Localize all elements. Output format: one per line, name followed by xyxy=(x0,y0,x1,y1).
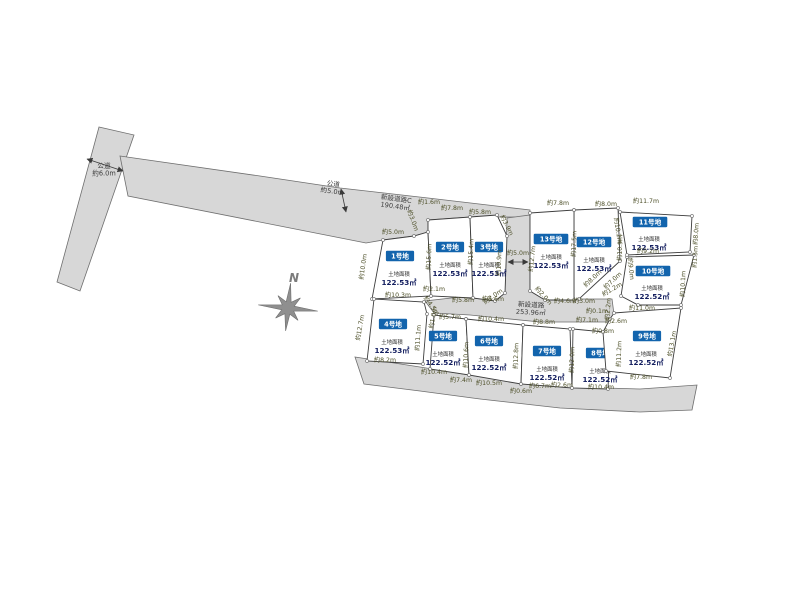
survey-marker-dot xyxy=(520,383,523,386)
survey-marker-dot xyxy=(382,239,385,242)
plot-2-label: 2号地 xyxy=(441,242,459,251)
survey-marker-dot xyxy=(426,313,429,316)
dimension-label: 約11.0m xyxy=(629,304,655,312)
survey-marker-dot xyxy=(573,209,576,212)
plot-4-area-title: 土地面積 xyxy=(381,338,403,346)
dimension-label: 約10.1m xyxy=(679,271,688,297)
survey-marker-dot xyxy=(413,235,416,238)
survey-marker-dot xyxy=(680,304,683,307)
plot-2-area-title: 土地面積 xyxy=(439,261,461,269)
plot-1-area-title: 土地面積 xyxy=(388,270,410,278)
new-road-label: 新設道路253.96㎡ xyxy=(516,299,547,317)
survey-marker-dot xyxy=(620,295,623,298)
plot-10-label: 10号地 xyxy=(642,266,665,275)
dimension-label: 約10.5m xyxy=(476,379,502,387)
dimension-label: 約10.4m xyxy=(421,368,447,376)
plot-7-area-value: 122.52㎡ xyxy=(530,373,566,382)
dimension-label: 約7.8m xyxy=(441,204,463,212)
compass-north-label: N xyxy=(289,271,299,285)
plot-1-label: 1号地 xyxy=(391,251,409,260)
dimension-label: 約8.8m xyxy=(533,318,555,326)
survey-marker-dot xyxy=(529,212,532,215)
plot-1-area-value: 122.53㎡ xyxy=(382,278,418,287)
dimension-label: 約10.3m xyxy=(385,291,411,299)
dimension-label: 約8.0m xyxy=(595,200,617,208)
plot-12-area-title: 土地面積 xyxy=(583,256,605,264)
survey-marker-dot xyxy=(422,363,425,366)
survey-marker-dot xyxy=(427,219,430,222)
survey-marker-dot xyxy=(529,290,532,293)
plot-6-label: 6号地 xyxy=(480,336,498,345)
dimension-label: 約5.7m xyxy=(439,313,461,321)
compass-star xyxy=(256,280,321,334)
plot-5-area-title: 土地面積 xyxy=(432,350,454,358)
plot-6-area-title: 土地面積 xyxy=(478,355,500,363)
dimension-label: 約10.6m xyxy=(462,342,471,368)
dimension-label: 約3.0m xyxy=(573,297,595,305)
dimension-label: 約7.1m xyxy=(576,316,598,324)
compass-rose-icon: N xyxy=(256,271,321,334)
dimension-label: 約15.4m xyxy=(467,239,476,265)
plot-7-label: 7号地 xyxy=(538,346,556,355)
plot-10-area-title: 土地面積 xyxy=(641,284,663,292)
dimension-label: 約12.0m xyxy=(568,347,577,373)
survey-marker-dot xyxy=(569,328,572,331)
survey-marker-dot xyxy=(373,298,376,301)
plot-9-area-title: 土地面積 xyxy=(635,350,657,358)
survey-marker-dot xyxy=(572,328,575,331)
plot-2-area-value: 122.53㎡ xyxy=(433,269,469,278)
survey-marker-dot xyxy=(605,370,608,373)
plot-6-area-value: 122.52㎡ xyxy=(472,363,508,372)
plot-8-area-value: 122.52㎡ xyxy=(583,375,619,384)
survey-marker-dot xyxy=(669,377,672,380)
dimension-label: 約10.4m xyxy=(478,315,504,323)
dimension-label: 約8.0m xyxy=(691,223,701,246)
dimension-label: 約12.7m xyxy=(354,314,366,341)
survey-marker-dot xyxy=(366,360,369,363)
dimension-label: 約7.8m xyxy=(547,199,569,207)
dimension-label: 約7.8m xyxy=(630,373,652,381)
plot-11-label: 11号地 xyxy=(639,217,662,226)
plot-9-area-value: 122.52㎡ xyxy=(629,358,665,367)
land-subdivision-plat-svg: 1号地土地面積122.53㎡2号地土地面積122.53㎡3号地土地面積122.5… xyxy=(0,0,800,600)
dimension-label: 約10.4m xyxy=(588,383,614,391)
plot-4-area-value: 122.53㎡ xyxy=(375,346,411,355)
survey-marker-dot xyxy=(689,251,692,254)
dimension-label: 約1.6m xyxy=(418,198,440,206)
survey-marker-dot xyxy=(465,318,468,321)
plot-7-area-title: 土地面積 xyxy=(536,365,558,373)
dimension-label: 約7.4m xyxy=(450,376,472,384)
dimension-label: 約8.2m xyxy=(374,356,396,364)
survey-marker-dot xyxy=(522,324,525,327)
dimension-label: 約9.2m xyxy=(637,247,659,255)
survey-marker-dot xyxy=(691,215,694,218)
plot-7: 7号地土地面積122.52㎡ xyxy=(520,324,574,390)
plot-13-area-title: 土地面積 xyxy=(540,253,562,261)
plot-10-area-value: 122.52㎡ xyxy=(635,292,671,301)
plot-13-label: 13号地 xyxy=(540,234,563,243)
dimension-label: 約5.0m xyxy=(507,249,529,257)
dimension-label: 約6.7m xyxy=(529,382,551,390)
dimension-label: 約2.6m xyxy=(551,381,573,389)
survey-marker-dot xyxy=(613,312,616,315)
plot-4-label: 4号地 xyxy=(384,319,402,328)
plot-9-label: 9号地 xyxy=(638,331,656,340)
land-plot-map-page: 1号地土地面積122.53㎡2号地土地面積122.53㎡3号地土地面積122.5… xyxy=(0,0,800,600)
dimension-label: 約12.8m xyxy=(512,343,521,369)
dimension-label: 約0.8m xyxy=(592,327,614,335)
dimension-label: 約17.5m xyxy=(570,231,579,257)
dimension-label: 約10.0m xyxy=(357,253,369,280)
survey-marker-dot xyxy=(427,231,430,234)
dimension-label: 約5.8m xyxy=(452,296,474,304)
dimension-label: 約11.2m xyxy=(615,341,624,367)
survey-marker-dot xyxy=(680,307,683,310)
plot-5-area-value: 122.52㎡ xyxy=(426,358,462,367)
plot-11-area-title: 土地面積 xyxy=(638,235,660,243)
plot-13-area-value: 122.53㎡ xyxy=(534,261,570,270)
dimension-label: 約5.0m xyxy=(382,228,404,236)
plot-12-label: 12号地 xyxy=(583,237,606,246)
plot-5-label: 5号地 xyxy=(434,331,452,340)
dimension-label: 約11.7m xyxy=(633,197,659,205)
dimension-label: 約2.1m xyxy=(423,285,445,293)
dimension-label: 約10.9m xyxy=(495,250,504,276)
dimension-label: 約5.8m xyxy=(469,208,491,216)
dimension-label: 約15.6m xyxy=(425,244,434,270)
public-road-6m-band xyxy=(57,127,134,291)
survey-marker-dot xyxy=(626,254,629,257)
dimension-label: 約1.5m xyxy=(690,246,700,269)
survey-marker-dot xyxy=(619,211,622,214)
